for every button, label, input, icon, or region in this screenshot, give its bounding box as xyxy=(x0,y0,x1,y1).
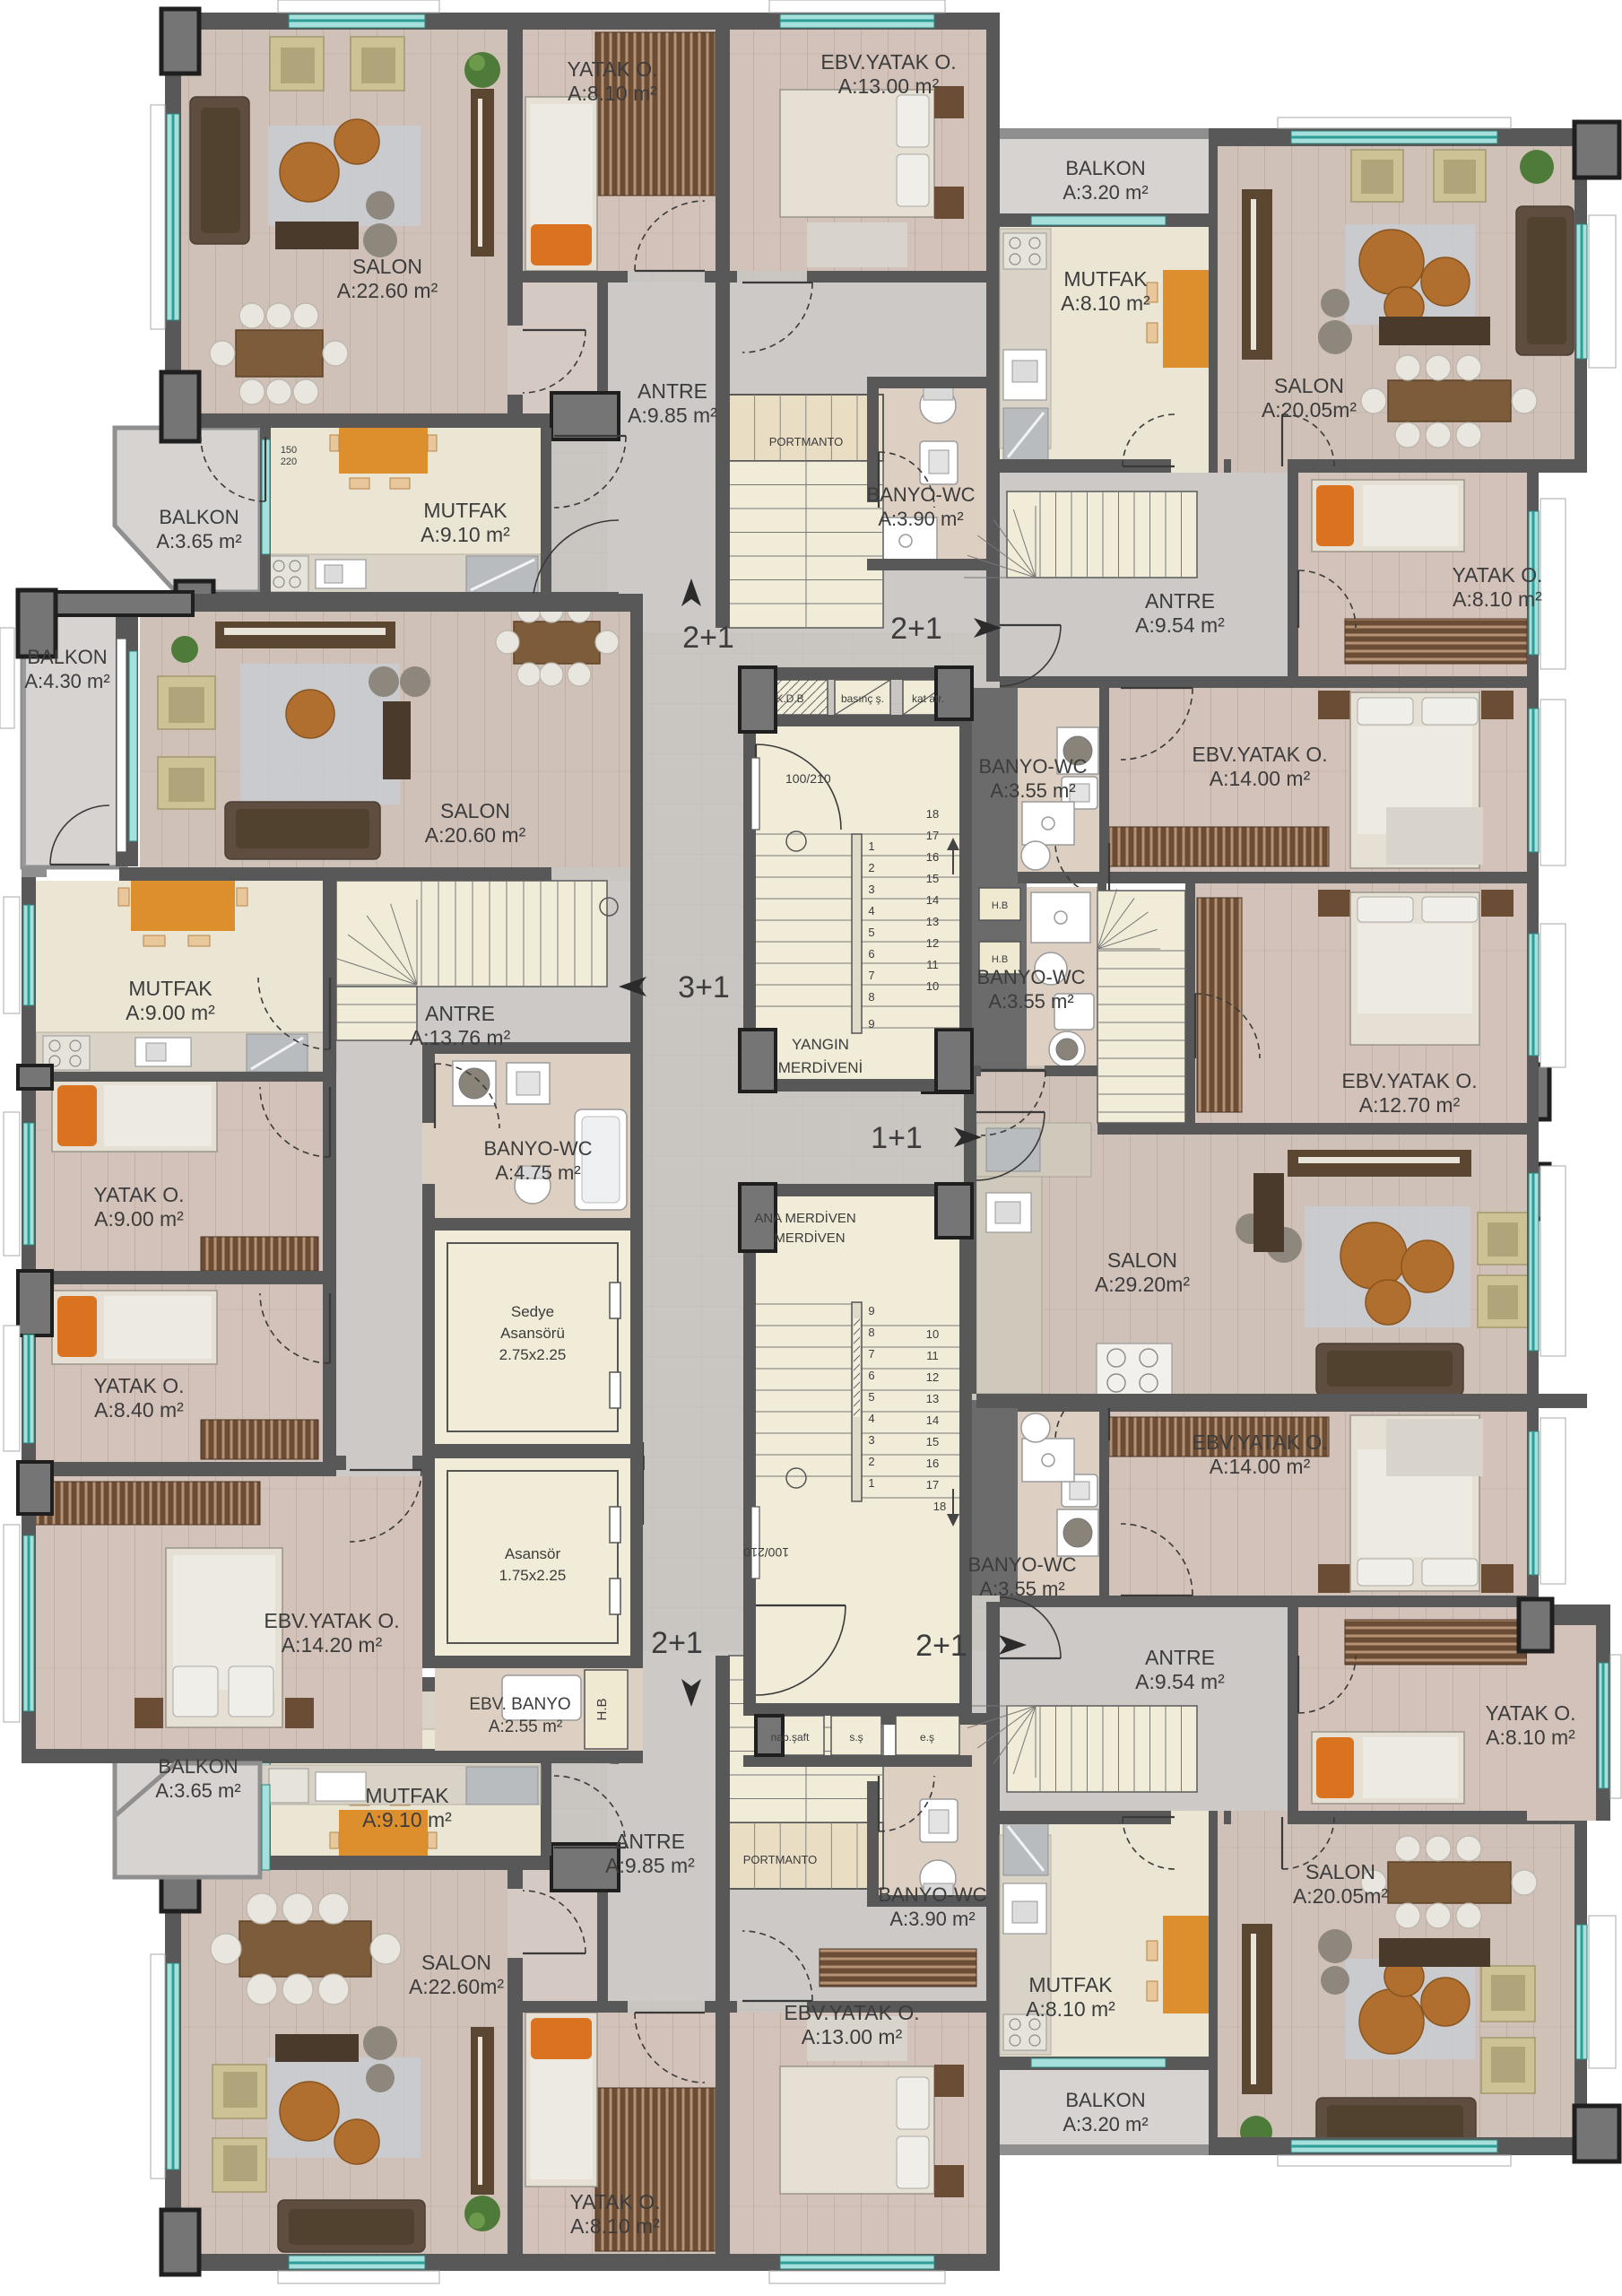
svg-text:1: 1 xyxy=(868,1476,874,1490)
svg-text:100/210: 100/210 xyxy=(785,771,831,786)
svg-text:2+1: 2+1 xyxy=(651,1626,703,1660)
svg-text:A:13.76 m²: A:13.76 m² xyxy=(410,1026,511,1049)
svg-text:A:3.90 m²: A:3.90 m² xyxy=(878,508,963,530)
svg-text:A:14.00 m²: A:14.00 m² xyxy=(1210,767,1311,790)
svg-text:A:9.00 m²: A:9.00 m² xyxy=(94,1207,184,1231)
svg-text:MUTFAK: MUTFAK xyxy=(1028,1973,1113,1996)
svg-text:ANA MERDİVEN: ANA MERDİVEN xyxy=(754,1210,855,1226)
svg-text:MUTFAK: MUTFAK xyxy=(365,1784,449,1807)
svg-text:SALON: SALON xyxy=(421,1951,491,1974)
svg-text:MERDİVEN: MERDİVEN xyxy=(774,1230,845,1246)
svg-text:2: 2 xyxy=(868,861,874,874)
svg-text:8: 8 xyxy=(868,990,874,1004)
svg-text:nab.şaft: nab.şaft xyxy=(771,1731,810,1744)
svg-text:13: 13 xyxy=(926,1392,939,1405)
svg-text:A:29.20m²: A:29.20m² xyxy=(1095,1273,1190,1296)
svg-text:3: 3 xyxy=(868,883,874,896)
svg-text:12: 12 xyxy=(926,1370,939,1384)
svg-text:BALKON: BALKON xyxy=(27,646,107,668)
svg-text:2+1: 2+1 xyxy=(682,621,734,655)
svg-text:BALKON: BALKON xyxy=(1065,2089,1145,2111)
svg-text:A:9.10 m²: A:9.10 m² xyxy=(362,1808,452,1831)
svg-text:MUTFAK: MUTFAK xyxy=(1063,267,1148,291)
svg-text:18: 18 xyxy=(926,807,939,821)
svg-text:A:3.20 m²: A:3.20 m² xyxy=(1063,2113,1148,2135)
svg-text:Asansörü: Asansörü xyxy=(500,1325,565,1342)
svg-text:MERDİVENİ: MERDİVENİ xyxy=(778,1059,863,1076)
svg-text:H.B: H.B xyxy=(594,1698,610,1720)
svg-text:A:22.60 m²: A:22.60 m² xyxy=(337,279,438,302)
svg-text:YATAK O.: YATAK O. xyxy=(1486,1701,1576,1725)
svg-text:12: 12 xyxy=(926,936,939,950)
svg-text:A:3.65 m²: A:3.65 m² xyxy=(156,530,241,552)
svg-text:9: 9 xyxy=(868,1017,874,1031)
svg-text:A:20.60 m²: A:20.60 m² xyxy=(425,823,526,847)
svg-text:14: 14 xyxy=(926,893,939,907)
svg-text:A:13.00 m²: A:13.00 m² xyxy=(802,2025,903,2048)
svg-text:A:9.54 m²: A:9.54 m² xyxy=(1135,1670,1225,1693)
svg-text:2.75x2.25: 2.75x2.25 xyxy=(499,1346,567,1363)
svg-text:s.ş: s.ş xyxy=(849,1731,863,1744)
svg-text:18: 18 xyxy=(933,1500,946,1513)
svg-text:A:9.54 m²: A:9.54 m² xyxy=(1135,613,1225,637)
svg-text:PORTMANTO: PORTMANTO xyxy=(743,1853,818,1866)
svg-text:SALON: SALON xyxy=(440,799,510,822)
svg-text:16: 16 xyxy=(926,1457,939,1470)
svg-text:ANTRE: ANTRE xyxy=(638,379,707,403)
svg-text:A:22.60m²: A:22.60m² xyxy=(409,1975,504,1998)
svg-text:1.75x2.25: 1.75x2.25 xyxy=(499,1567,567,1584)
svg-text:9: 9 xyxy=(868,1304,874,1318)
svg-text:17: 17 xyxy=(926,1478,939,1492)
svg-text:YATAK O.: YATAK O. xyxy=(94,1183,185,1206)
svg-text:YATAK O.: YATAK O. xyxy=(94,1374,185,1397)
svg-text:BANYO-WC: BANYO-WC xyxy=(979,755,1088,778)
svg-text:220: 220 xyxy=(281,457,297,467)
svg-text:2: 2 xyxy=(868,1455,874,1468)
svg-text:kat atr.: kat atr. xyxy=(912,692,944,705)
svg-text:A:9.00 m²: A:9.00 m² xyxy=(126,1001,215,1024)
svg-text:10: 10 xyxy=(926,1327,939,1341)
svg-text:e.ş: e.ş xyxy=(920,1731,934,1744)
svg-text:17: 17 xyxy=(926,829,939,842)
svg-text:2+1: 2+1 xyxy=(915,1629,967,1663)
svg-text:A:3.55 m²: A:3.55 m² xyxy=(979,1578,1064,1600)
svg-text:2+1: 2+1 xyxy=(890,612,942,646)
svg-text:EBV.YATAK O.: EBV.YATAK O. xyxy=(1192,1431,1327,1454)
svg-text:BANYO-WC: BANYO-WC xyxy=(879,1883,987,1906)
svg-text:100/210: 100/210 xyxy=(743,1545,789,1560)
svg-text:BALKON: BALKON xyxy=(158,1755,238,1778)
svg-text:A:3.55 m²: A:3.55 m² xyxy=(990,779,1075,802)
svg-text:1+1: 1+1 xyxy=(871,1121,923,1155)
svg-text:A:9.85 m²: A:9.85 m² xyxy=(605,1854,695,1877)
svg-text:A:9.10 m²: A:9.10 m² xyxy=(421,523,510,546)
svg-text:Asansör: Asansör xyxy=(505,1545,561,1562)
svg-text:EBV.YATAK O.: EBV.YATAK O. xyxy=(1192,743,1327,766)
svg-text:SALON: SALON xyxy=(1274,374,1344,397)
svg-text:H.B: H.B xyxy=(992,954,1008,965)
svg-text:A:8.10 m²: A:8.10 m² xyxy=(1486,1726,1575,1749)
svg-text:11: 11 xyxy=(926,958,939,971)
svg-text:EBV. BANYO: EBV. BANYO xyxy=(469,1695,570,1714)
svg-text:BANYO-WC: BANYO-WC xyxy=(977,966,1086,988)
svg-text:YATAK O.: YATAK O. xyxy=(568,57,658,81)
svg-text:6: 6 xyxy=(868,1369,874,1382)
svg-text:4: 4 xyxy=(868,1412,874,1425)
svg-text:PORTMANTO: PORTMANTO xyxy=(769,435,844,448)
svg-text:A:8.40 m²: A:8.40 m² xyxy=(94,1398,184,1422)
svg-text:A:8.10 m²: A:8.10 m² xyxy=(570,2214,660,2238)
svg-text:K.D.B: K.D.B xyxy=(776,692,803,705)
svg-text:A:14.00 m²: A:14.00 m² xyxy=(1210,1455,1311,1478)
svg-text:A:2.55 m²: A:2.55 m² xyxy=(489,1718,562,1736)
svg-text:A:8.10 m²: A:8.10 m² xyxy=(568,82,657,105)
svg-text:A:4.30 m²: A:4.30 m² xyxy=(24,670,109,692)
svg-text:BALKON: BALKON xyxy=(159,506,239,528)
svg-text:15: 15 xyxy=(926,872,939,885)
svg-text:EBV.YATAK O.: EBV.YATAK O. xyxy=(264,1609,399,1632)
svg-text:ANTRE: ANTRE xyxy=(615,1830,685,1853)
svg-text:6: 6 xyxy=(868,947,874,961)
svg-text:EBV.YATAK O.: EBV.YATAK O. xyxy=(784,2001,919,2024)
svg-text:Sedye: Sedye xyxy=(511,1303,554,1320)
svg-text:A:13.00 m²: A:13.00 m² xyxy=(838,74,940,98)
svg-text:A:4.75 m²: A:4.75 m² xyxy=(495,1161,580,1184)
svg-text:MUTFAK: MUTFAK xyxy=(128,977,213,1000)
svg-text:16: 16 xyxy=(926,850,939,864)
svg-text:SALON: SALON xyxy=(1305,1860,1375,1883)
svg-text:10: 10 xyxy=(926,979,939,993)
svg-text:SALON: SALON xyxy=(352,255,422,278)
svg-text:15: 15 xyxy=(926,1435,939,1448)
svg-text:A:8.10 m²: A:8.10 m² xyxy=(1061,291,1150,315)
svg-text:ANTRE: ANTRE xyxy=(425,1002,495,1025)
svg-text:YANGIN: YANGIN xyxy=(792,1036,849,1053)
svg-text:11: 11 xyxy=(926,1349,939,1362)
svg-text:ANTRE: ANTRE xyxy=(1145,589,1215,613)
svg-text:A:12.70 m²: A:12.70 m² xyxy=(1359,1093,1461,1117)
svg-text:5: 5 xyxy=(868,926,874,939)
svg-text:YATAK O.: YATAK O. xyxy=(570,2190,661,2213)
svg-text:A:3.55 m²: A:3.55 m² xyxy=(988,990,1073,1013)
svg-text:A:20.05m²: A:20.05m² xyxy=(1293,1884,1388,1908)
svg-text:7: 7 xyxy=(868,969,874,982)
svg-text:A:14.20 m²: A:14.20 m² xyxy=(282,1633,383,1657)
svg-text:BANYO-WC: BANYO-WC xyxy=(968,1553,1077,1576)
svg-text:A:8.10 m²: A:8.10 m² xyxy=(1453,587,1542,611)
svg-text:8: 8 xyxy=(868,1326,874,1339)
svg-text:ANTRE: ANTRE xyxy=(1145,1646,1215,1669)
svg-text:BANYO-WC: BANYO-WC xyxy=(484,1137,593,1160)
svg-text:7: 7 xyxy=(868,1347,874,1361)
svg-text:150: 150 xyxy=(281,445,297,456)
svg-text:A:3.90 m²: A:3.90 m² xyxy=(889,1908,975,1930)
svg-text:14: 14 xyxy=(926,1413,939,1427)
svg-text:A:3.20 m²: A:3.20 m² xyxy=(1063,181,1148,204)
svg-text:A:3.65 m²: A:3.65 m² xyxy=(155,1779,240,1802)
svg-text:SALON: SALON xyxy=(1107,1248,1177,1272)
svg-text:4: 4 xyxy=(868,904,874,918)
svg-text:3: 3 xyxy=(868,1433,874,1447)
svg-text:YATAK O.: YATAK O. xyxy=(1453,563,1543,587)
svg-text:1: 1 xyxy=(868,839,874,853)
svg-text:5: 5 xyxy=(868,1390,874,1404)
svg-text:13: 13 xyxy=(926,915,939,928)
svg-text:MUTFAK: MUTFAK xyxy=(423,499,507,522)
svg-text:3+1: 3+1 xyxy=(678,970,730,1004)
svg-text:BANYO-WC: BANYO-WC xyxy=(867,483,976,506)
svg-text:EBV.YATAK O.: EBV.YATAK O. xyxy=(1341,1069,1477,1092)
svg-text:A:20.05m²: A:20.05m² xyxy=(1262,398,1357,422)
svg-text:H.B: H.B xyxy=(992,900,1008,911)
svg-text:A:9.85 m²: A:9.85 m² xyxy=(628,404,717,427)
svg-text:A:8.10 m²: A:8.10 m² xyxy=(1026,1997,1115,2021)
svg-text:EBV.YATAK O.: EBV.YATAK O. xyxy=(820,50,956,74)
svg-text:basınç ş.: basınç ş. xyxy=(841,692,884,705)
svg-text:BALKON: BALKON xyxy=(1065,157,1145,179)
